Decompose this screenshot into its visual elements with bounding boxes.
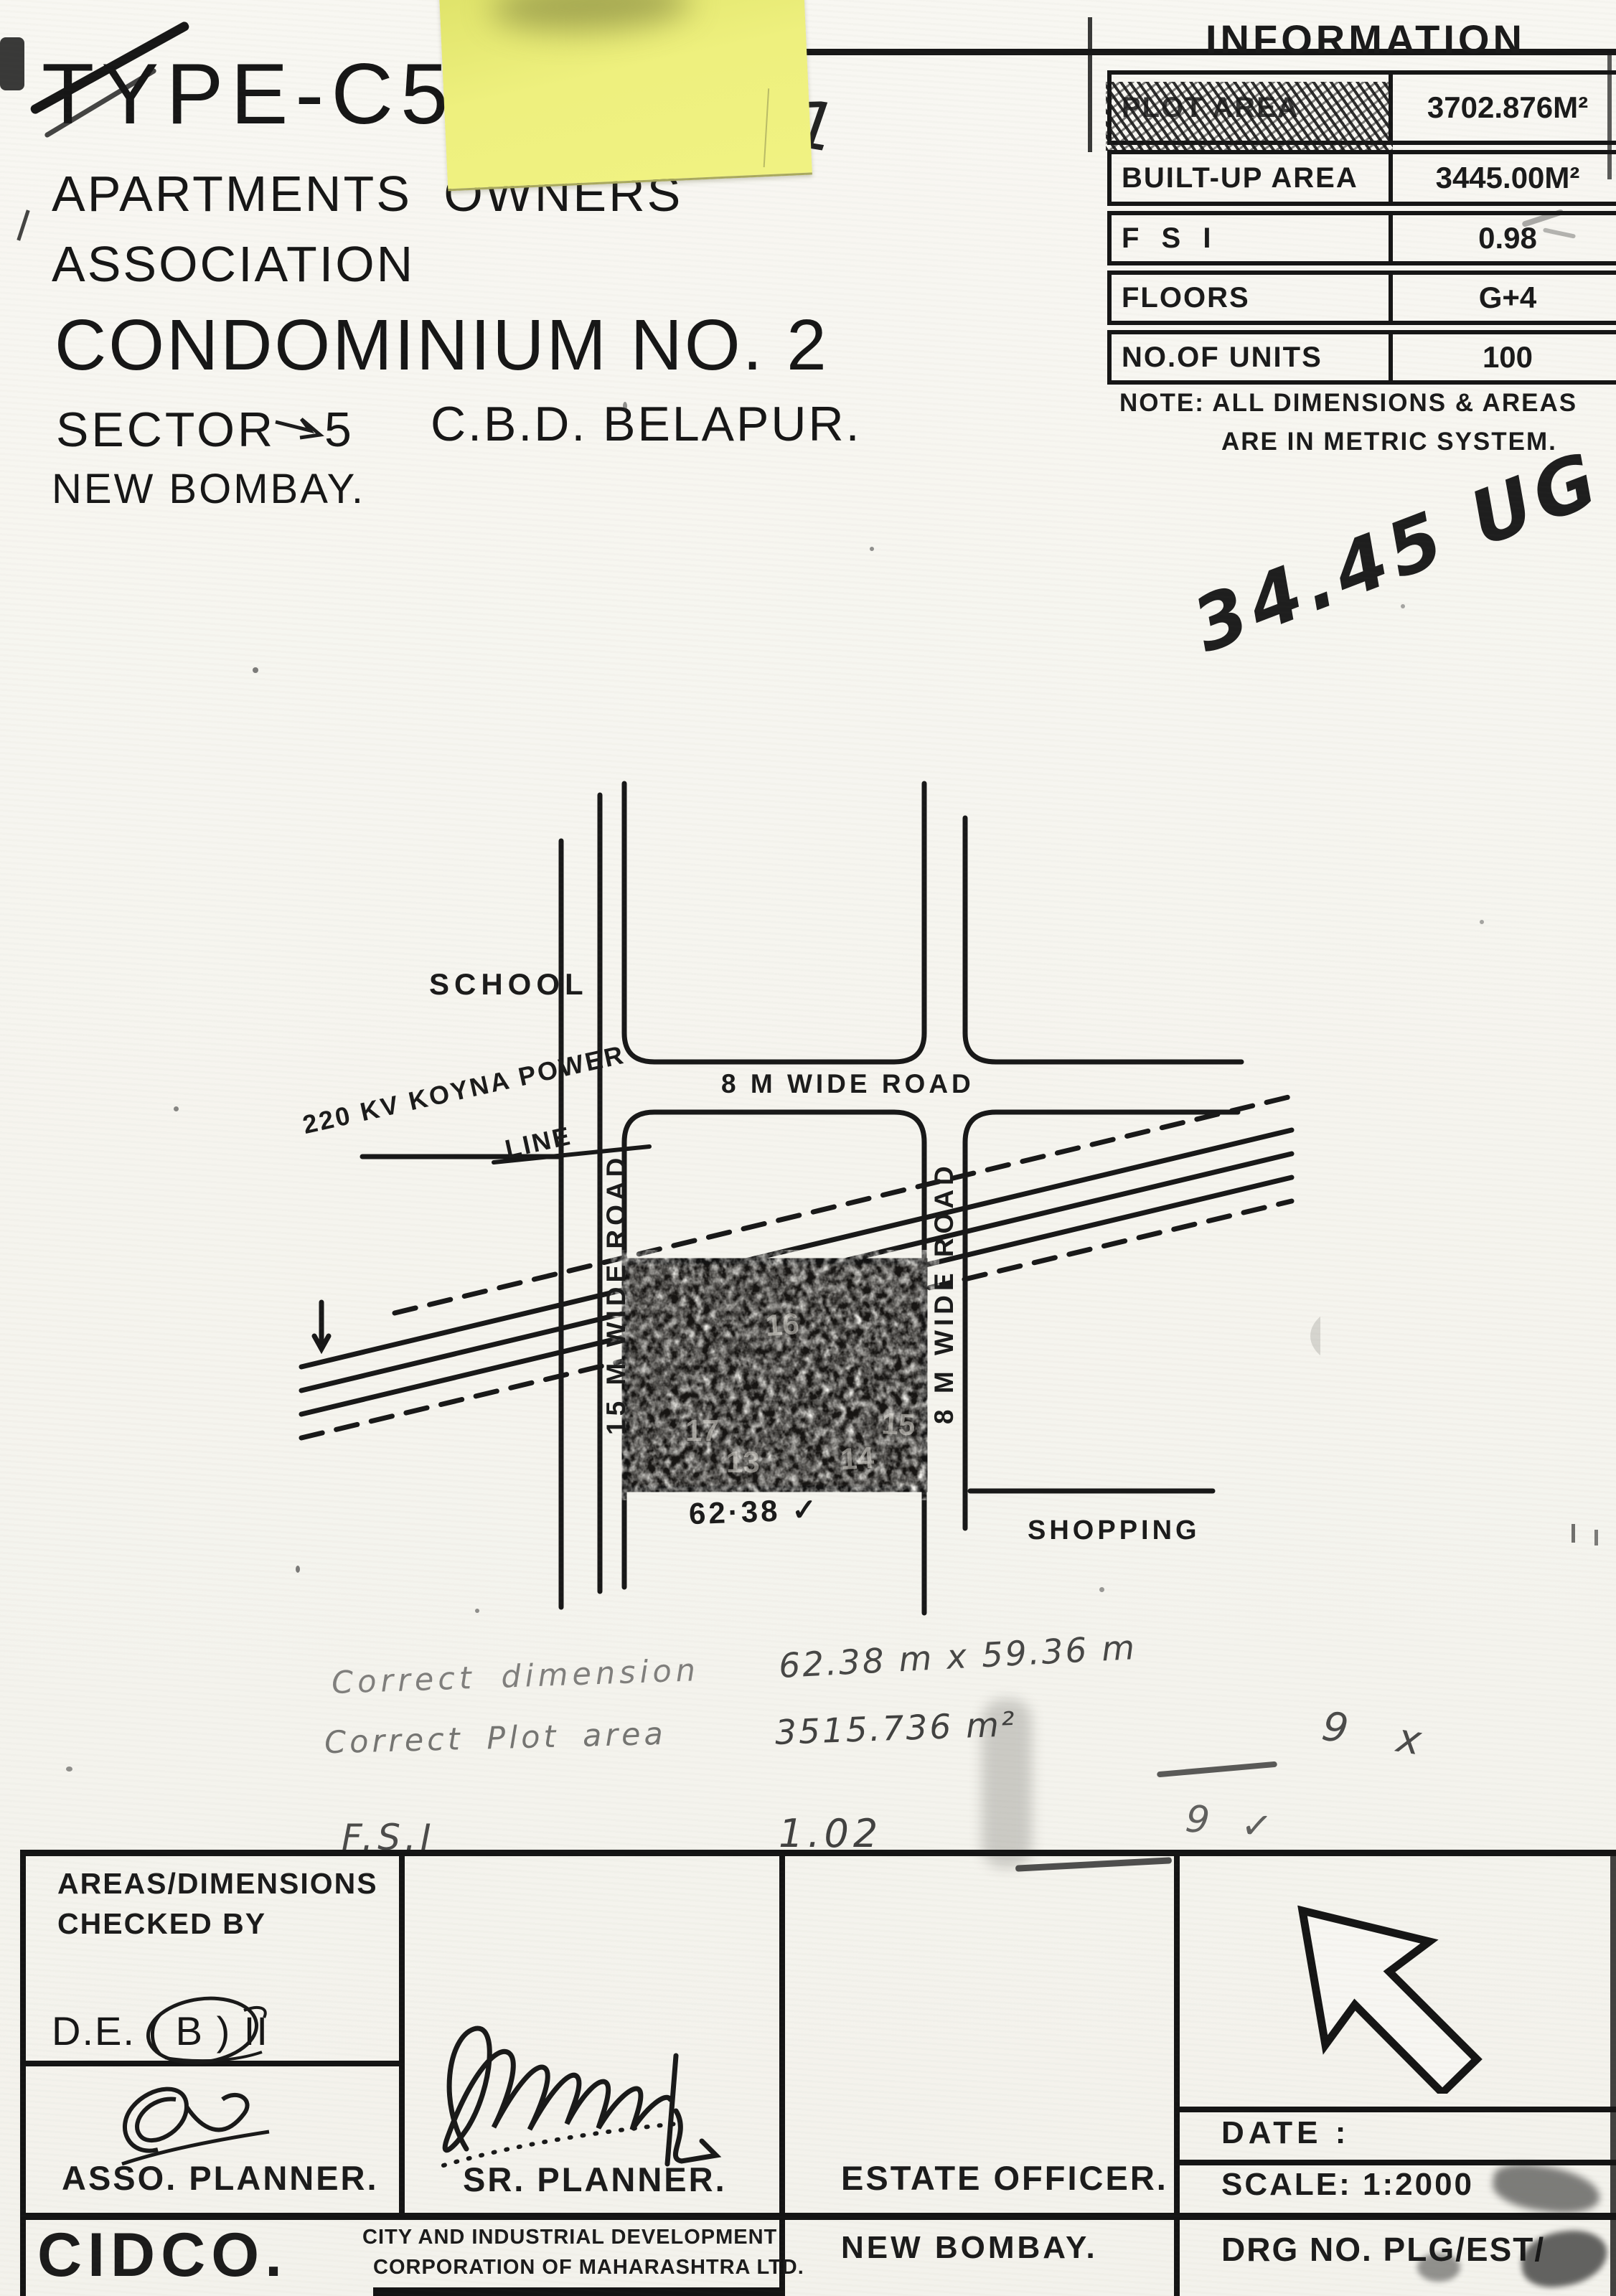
sector-pen-mark bbox=[273, 409, 330, 445]
tb-date-divider bbox=[1174, 2107, 1616, 2112]
ink-smudge bbox=[1417, 2253, 1460, 2282]
info-value-fsi: 0.98 bbox=[1389, 215, 1616, 261]
sr-planner-label: SR. PLANNER. bbox=[463, 2160, 727, 2199]
sr-planner-signature bbox=[423, 1987, 761, 2174]
speck bbox=[870, 547, 874, 551]
tb-top-border bbox=[20, 1850, 1616, 1856]
cidco-corp-line1: CITY AND INDUSTRIAL DEVELOPMENT bbox=[362, 2226, 777, 2249]
label-plot-dimension: 62·38 ✓ bbox=[688, 1492, 820, 1531]
stray-mark bbox=[1572, 1524, 1575, 1543]
info-value-floors: G+4 bbox=[1389, 275, 1616, 321]
correction-line3-mark: 9 ✓ bbox=[1183, 1797, 1284, 1850]
info-row-builtup: BUILT-UP AREA 3445.00M² bbox=[1107, 150, 1616, 206]
speck bbox=[253, 667, 258, 673]
correction-line2-dash bbox=[1157, 1761, 1277, 1778]
info-row-plot-area: PLOT AREA 3702.876M² bbox=[1107, 70, 1616, 145]
sticky-note-crease bbox=[764, 88, 770, 167]
checked-by-line1: AREAS/DIMENSIONS bbox=[57, 1867, 378, 1901]
metric-note-line2: ARE IN METRIC SYSTEM. bbox=[1221, 428, 1557, 456]
ink-smudge bbox=[1490, 2160, 1602, 2219]
scanned-drawing-sheet: TYPE-C5 APARTMENTS OWNERS ASSOCIATION CO… bbox=[0, 0, 1616, 2296]
label-school: SCHOOL bbox=[429, 967, 588, 1002]
label-road-right: 8 M WIDE ROAD bbox=[929, 1152, 959, 1424]
stray-mark bbox=[1594, 1530, 1598, 1545]
tb-right-border bbox=[1610, 1850, 1616, 2296]
tb-left-border bbox=[20, 1850, 26, 2296]
title-association: ASSOCIATION bbox=[52, 235, 415, 293]
speck bbox=[66, 1766, 72, 1772]
info-value-units: 100 bbox=[1389, 334, 1616, 380]
cidco-logo-text: CIDCO. bbox=[37, 2220, 288, 2291]
title-new-bombay: NEW BOMBAY. bbox=[52, 465, 365, 513]
speck bbox=[1480, 920, 1484, 924]
correction-line2-label: Correct Plot area bbox=[324, 1716, 667, 1761]
checked-by-line2: CHECKED BY bbox=[57, 1907, 266, 1941]
label-road-top: 8 M WIDE ROAD bbox=[721, 1069, 974, 1099]
plot-number: 16 bbox=[764, 1307, 800, 1342]
info-label-plot-area: PLOT AREA bbox=[1112, 92, 1389, 124]
north-arrow-icon bbox=[1263, 1878, 1500, 2094]
estate-officer-label: ESTATE OFFICER. bbox=[841, 2158, 1168, 2198]
date-label: DATE : bbox=[1221, 2115, 1350, 2151]
info-row-floors: FLOORS G+4 bbox=[1107, 270, 1616, 325]
label-road-left: 15 M WIDE ROAD bbox=[601, 1152, 631, 1435]
metric-note-line1: NOTE: ALL DIMENSIONS & AREAS bbox=[1119, 389, 1577, 418]
handwritten-area-note: 34.45 UG bbox=[1181, 434, 1614, 670]
scale-label: SCALE: 1:2000 bbox=[1221, 2167, 1474, 2203]
cidco-corp-line2: CORPORATION OF MAHARASHTRA LTD. bbox=[373, 2256, 804, 2279]
info-label-floors: FLOORS bbox=[1112, 282, 1389, 314]
sticky-note bbox=[439, 0, 812, 191]
scribble-overlay bbox=[1106, 82, 1393, 151]
corner-blob bbox=[0, 37, 24, 90]
info-label-fsi: F S I bbox=[1112, 222, 1389, 255]
new-bombay-label: NEW BOMBAY. bbox=[841, 2230, 1098, 2266]
info-value-plot-area: 3702.876M² bbox=[1389, 75, 1616, 141]
speck bbox=[174, 1106, 179, 1111]
tb-col2-divider bbox=[779, 1850, 785, 2296]
asso-planner-label: ASSO. PLANNER. bbox=[62, 2158, 379, 2198]
frame-artifact-line bbox=[1088, 17, 1092, 152]
label-shopping: SHOPPING bbox=[1028, 1515, 1201, 1546]
speck bbox=[1099, 1587, 1104, 1592]
plot-number: 13 bbox=[726, 1445, 760, 1479]
info-value-builtup: 3445.00M² bbox=[1389, 154, 1616, 202]
plot-number: 17 bbox=[685, 1413, 719, 1447]
title-type: TYPE-C5 bbox=[42, 44, 456, 143]
block-upper-right bbox=[965, 818, 1241, 1062]
speck bbox=[296, 1566, 300, 1573]
sticky-note-smudge bbox=[489, 0, 692, 34]
correction-line3-dash bbox=[1015, 1857, 1172, 1871]
speck bbox=[475, 1609, 479, 1613]
speck bbox=[623, 402, 627, 410]
plot-number: 15 bbox=[881, 1406, 916, 1441]
tb-col1-divider bbox=[399, 1850, 405, 2220]
de-scribble-circle bbox=[136, 1989, 301, 2075]
margin-tick bbox=[17, 210, 29, 240]
ink-smear bbox=[982, 1699, 1032, 1868]
info-table-title: INFORMATION bbox=[1206, 16, 1526, 62]
drg-no-label: DRG NO. PLG/EST/ bbox=[1221, 2230, 1545, 2269]
info-label-builtup: BUILT-UP AREA bbox=[1112, 162, 1389, 194]
scan-smudge bbox=[1310, 1304, 1320, 1368]
title-belapur: C.B.D. BELAPUR. bbox=[431, 396, 862, 452]
tb-bottom-border-fragment bbox=[373, 2287, 784, 2296]
info-label-units: NO.OF UNITS bbox=[1112, 342, 1389, 374]
tb-scale-divider bbox=[1174, 2160, 1616, 2165]
info-table: PLOT AREA 3702.876M² BUILT-UP AREA 3445.… bbox=[1107, 70, 1616, 390]
info-row-units: NO.OF UNITS 100 bbox=[1107, 330, 1616, 385]
tb-bottom-row-divider bbox=[20, 2213, 1616, 2220]
correction-line2-value: 3515.736 m² bbox=[774, 1705, 1018, 1753]
tb-col3-divider bbox=[1174, 1850, 1180, 2296]
title-sector: SECTOR bbox=[56, 402, 276, 458]
plot-number: 14 bbox=[840, 1441, 875, 1476]
plot-texture bbox=[626, 1261, 924, 1489]
speck bbox=[1401, 604, 1405, 608]
block-upper-left bbox=[624, 784, 924, 1062]
info-row-fsi: F S I 0.98 bbox=[1107, 211, 1616, 265]
title-condominium: CONDOMINIUM NO. 2 bbox=[55, 304, 829, 387]
correction-line1-label: Correct dimension bbox=[331, 1652, 700, 1701]
correction-line2-mark: 9 x bbox=[1319, 1703, 1443, 1768]
